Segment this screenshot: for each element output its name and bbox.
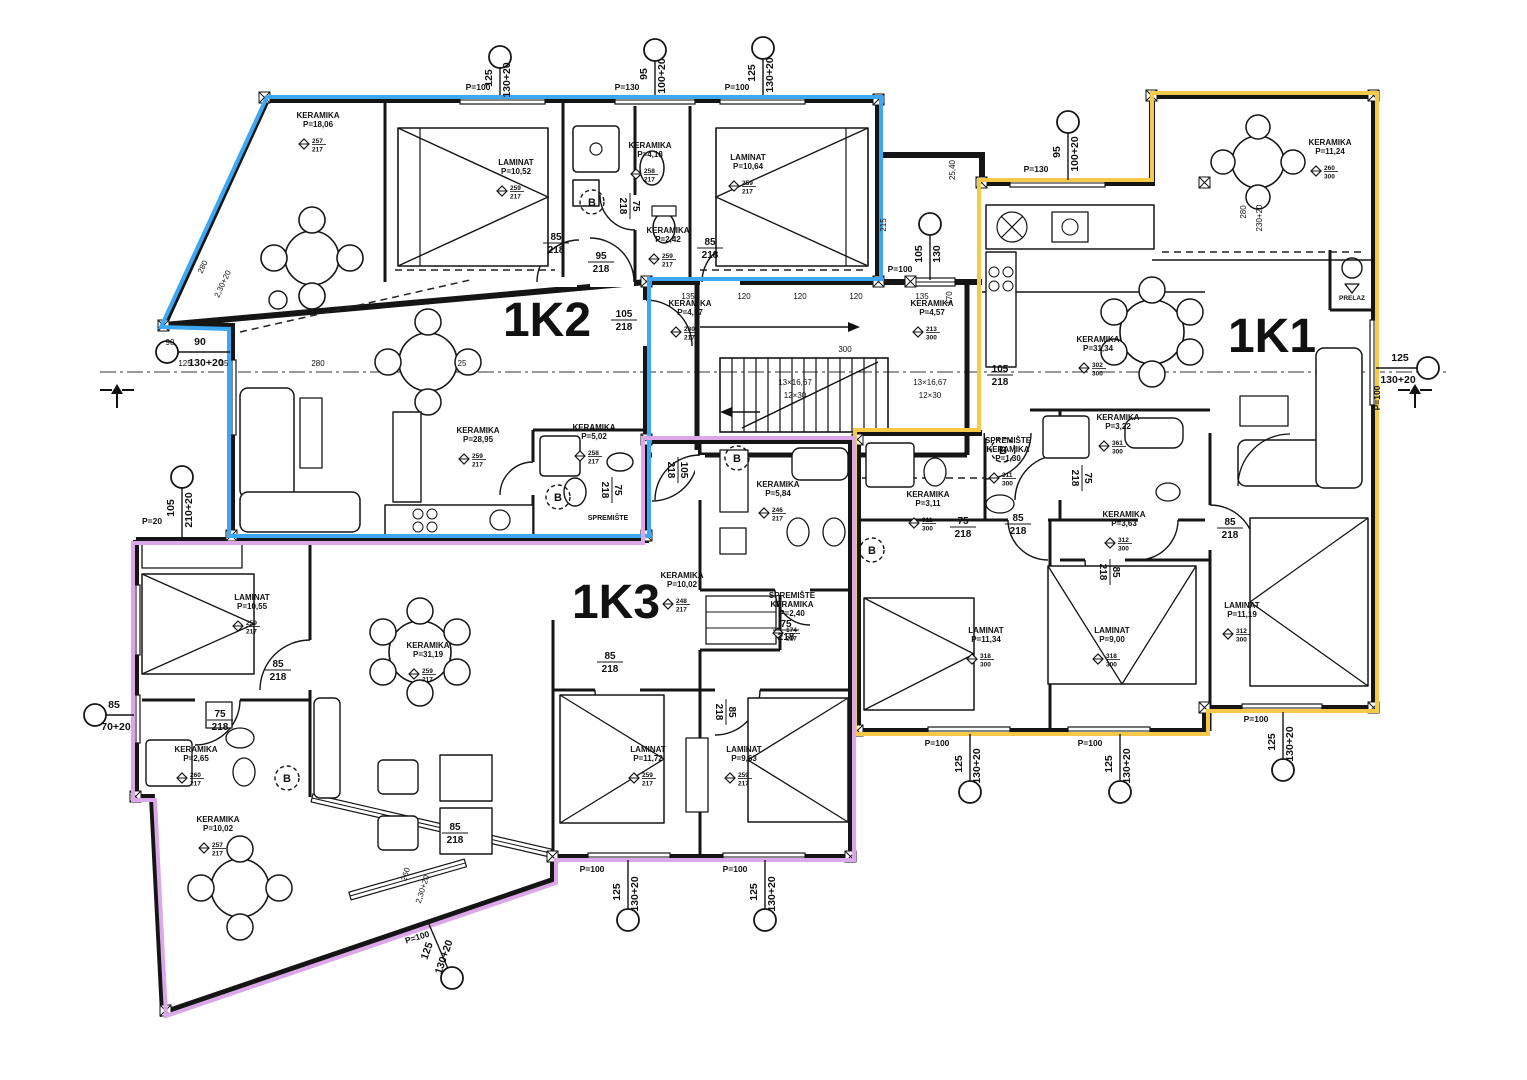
svg-text:P=11,19: P=11,19 [1227, 610, 1257, 619]
svg-text:KERAMIKA: KERAMIKA [456, 426, 499, 435]
svg-text:P=10,02: P=10,02 [203, 824, 234, 833]
svg-text:KERAMIKA: KERAMIKA [1096, 413, 1139, 422]
prelaz-icon [1342, 258, 1362, 293]
wall-p-label: P=100 [580, 864, 605, 874]
svg-text:300: 300 [1112, 449, 1123, 456]
wall-p-label: P=130 [615, 82, 640, 92]
svg-text:218: 218 [270, 672, 287, 683]
svg-text:75: 75 [630, 200, 641, 212]
wall-p-label: P=100 [888, 264, 913, 274]
bed-1k2-right [716, 128, 868, 266]
svg-text:217: 217 [422, 677, 433, 684]
dim-text: 280 [311, 359, 325, 368]
svg-text:KERAMIKA: KERAMIKA [986, 445, 1029, 454]
dim-text: 12×30 [919, 391, 942, 400]
svg-text:218: 218 [665, 462, 676, 479]
dim-text: 25 [458, 359, 467, 368]
svg-text:B: B [283, 773, 291, 785]
dim-text: 13×16,67 [913, 378, 947, 387]
svg-text:130+20: 130+20 [764, 57, 776, 92]
svg-text:P=2,40: P=2,40 [779, 609, 805, 618]
svg-text:217: 217 [312, 147, 323, 154]
section-marker-a-left [100, 384, 134, 408]
svg-text:312: 312 [1236, 628, 1247, 635]
svg-text:218: 218 [616, 322, 633, 333]
wall-p-label: P=100 [725, 82, 750, 92]
dim-text: 120 [737, 292, 751, 301]
svg-text:P=11,72: P=11,72 [633, 754, 663, 763]
svg-text:85: 85 [550, 232, 562, 243]
svg-text:105: 105 [616, 309, 633, 320]
svg-text:300: 300 [926, 335, 937, 342]
svg-text:218: 218 [713, 704, 724, 721]
svg-text:259: 259 [642, 772, 653, 779]
svg-text:218: 218 [548, 245, 565, 256]
dimension-marker: 125130+20 [746, 37, 776, 95]
svg-text:KERAMIKA: KERAMIKA [196, 815, 239, 824]
svg-text:KERAMIKA: KERAMIKA [1308, 138, 1351, 147]
apartment-label-1k2: 1K2 [503, 294, 591, 347]
dimension-marker: 105130 [913, 213, 943, 280]
svg-text:218: 218 [778, 632, 795, 643]
room-label: KERAMIKAP=11,24260300 [1308, 138, 1351, 181]
svg-text:260: 260 [1324, 165, 1335, 172]
svg-text:105: 105 [678, 462, 689, 479]
dimension-marker: 95100+20 [638, 39, 668, 95]
wall-p-label: P=100 [723, 864, 748, 874]
wall-p-label: P=100 [1372, 385, 1382, 410]
svg-text:100+20: 100+20 [656, 58, 668, 93]
dimension-marker: 125130+20 [1376, 352, 1439, 386]
svg-text:P=9,00: P=9,00 [1099, 635, 1125, 644]
dim-text: 120 [849, 292, 863, 301]
svg-text:85: 85 [449, 822, 461, 833]
svg-text:218: 218 [1097, 564, 1108, 581]
svg-text:130+20: 130+20 [501, 62, 513, 97]
svg-text:217: 217 [684, 335, 695, 342]
svg-text:75: 75 [957, 516, 969, 527]
svg-text:LAMINAT: LAMINAT [498, 158, 534, 167]
svg-text:217: 217 [676, 607, 687, 614]
dining-table-terrace-1k1 [1211, 115, 1305, 209]
room-label: KERAMIKAP=2,42259217 [646, 226, 689, 269]
svg-text:130+20: 130+20 [766, 876, 778, 911]
svg-text:218: 218 [212, 722, 229, 733]
svg-text:B: B [554, 492, 562, 504]
svg-text:KERAMIKA: KERAMIKA [628, 141, 671, 150]
svg-text:217: 217 [472, 462, 483, 469]
svg-text:70+20: 70+20 [101, 721, 131, 733]
svg-text:130+20: 130+20 [188, 357, 223, 369]
svg-text:300: 300 [980, 662, 991, 669]
misc-label: PRELAZ [1339, 295, 1365, 302]
svg-text:300: 300 [1106, 662, 1117, 669]
dim-text: 2,30+20 [212, 268, 233, 299]
dimension-marker: 8570+20 [84, 699, 134, 733]
svg-text:KERAMIKA: KERAMIKA [660, 571, 703, 580]
dim-text: 25,40 [948, 159, 957, 180]
svg-text:85: 85 [604, 651, 616, 662]
svg-text:300: 300 [1324, 174, 1335, 181]
wall-p-label: P=100 [925, 738, 950, 748]
svg-text:217: 217 [772, 516, 783, 523]
svg-text:217: 217 [742, 189, 753, 196]
dim-text: 280 [1239, 205, 1248, 219]
svg-text:217: 217 [588, 459, 599, 466]
door-size-label: 75218 [599, 477, 623, 503]
floor-plan-svg: 1K11K21K3KERAMIKAP=18,06257217LAMINATP=1… [0, 0, 1527, 1080]
svg-text:217: 217 [246, 629, 257, 636]
svg-text:217: 217 [212, 851, 223, 858]
svg-text:125: 125 [1391, 352, 1409, 364]
door-size-label: 85218 [713, 699, 737, 725]
bed-1k1-middle [1048, 566, 1196, 684]
wall-p-label: P=130 [1024, 164, 1049, 174]
svg-text:125: 125 [1266, 733, 1278, 751]
bed-1k2-left [398, 128, 548, 266]
dimension-marker: 125130+20 [748, 860, 778, 931]
svg-text:300: 300 [1002, 481, 1013, 488]
dim-text: 120 [793, 292, 807, 301]
svg-text:B: B [588, 197, 596, 209]
svg-text:95: 95 [638, 68, 650, 80]
svg-text:P=10,64: P=10,64 [733, 162, 764, 171]
dim-text: 170 [945, 291, 954, 305]
svg-text:KERAMIKA: KERAMIKA [756, 480, 799, 489]
svg-text:125: 125 [746, 64, 758, 82]
svg-text:130+20: 130+20 [1284, 726, 1296, 761]
svg-text:P=11,24: P=11,24 [1315, 147, 1345, 156]
boiler-mark: B [275, 766, 299, 790]
svg-text:130+20: 130+20 [971, 748, 983, 783]
svg-text:218: 218 [617, 198, 628, 215]
svg-text:P=9,63: P=9,63 [731, 754, 757, 763]
dimension-marker: 125130+20 [1103, 734, 1133, 803]
dim-text: 12×30 [784, 391, 807, 400]
svg-text:B: B [999, 445, 1007, 457]
door-size-label: 75218 [1069, 465, 1093, 491]
bed-1k1-left [864, 598, 974, 710]
svg-text:217: 217 [510, 194, 521, 201]
room-label: KERAMIKAP=4,57230217 [668, 299, 711, 342]
svg-text:230: 230 [684, 326, 695, 333]
svg-text:P=4,57: P=4,57 [677, 308, 703, 317]
svg-text:258: 258 [644, 168, 655, 175]
svg-text:125: 125 [748, 883, 760, 901]
apartment-label-1k1: 1K1 [1228, 310, 1316, 363]
svg-text:KERAMIKA: KERAMIKA [1076, 335, 1119, 344]
door-size-label: 105218 [611, 309, 637, 333]
boiler-mark: B [860, 538, 884, 562]
section-marker-a-right [1398, 384, 1432, 408]
svg-text:300: 300 [1236, 637, 1247, 644]
svg-text:P=2,42: P=2,42 [655, 235, 681, 244]
svg-text:75: 75 [780, 619, 792, 630]
svg-text:LAMINAT: LAMINAT [630, 745, 666, 754]
dim-text: 300 [838, 345, 852, 354]
dimension-marker: 125130+20 [1266, 712, 1296, 781]
bathroom-1k3-hall [706, 448, 848, 644]
svg-text:300: 300 [1092, 371, 1103, 378]
svg-text:KERAMIKA: KERAMIKA [296, 111, 339, 120]
svg-text:75: 75 [1082, 472, 1093, 484]
svg-text:85: 85 [1110, 566, 1121, 578]
svg-text:LAMINAT: LAMINAT [234, 593, 270, 602]
door-size-label: 85218 [597, 651, 623, 675]
svg-text:P=11,34: P=11,34 [971, 635, 1001, 644]
wardrobe-1k3 [142, 544, 242, 568]
svg-text:P=3,22: P=3,22 [1105, 422, 1131, 431]
svg-text:P=28,95: P=28,95 [463, 435, 494, 444]
svg-text:259: 259 [742, 180, 753, 187]
svg-text:312: 312 [1118, 537, 1129, 544]
apartment-label-1k3: 1K3 [572, 576, 660, 629]
svg-text:300: 300 [1118, 546, 1129, 553]
bed-1k3-bottom-right [748, 698, 848, 822]
dim-text: 35 [220, 359, 229, 368]
svg-text:P=31,34: P=31,34 [1083, 344, 1114, 353]
svg-text:257: 257 [312, 138, 323, 145]
svg-text:85: 85 [1012, 513, 1024, 524]
svg-text:218: 218 [593, 264, 610, 275]
dim-text: 230+20 [1255, 204, 1264, 231]
wall-p-label: P=20 [142, 516, 162, 526]
svg-text:259: 259 [662, 253, 673, 260]
svg-text:218: 218 [599, 482, 610, 499]
svg-text:85: 85 [1224, 517, 1236, 528]
room-label: KERAMIKAP=10,02248217 [660, 571, 703, 614]
svg-text:130+20: 130+20 [629, 876, 641, 911]
svg-text:361: 361 [1112, 440, 1123, 447]
svg-text:130: 130 [931, 245, 943, 263]
svg-text:259: 259 [510, 185, 521, 192]
svg-text:KERAMIKA: KERAMIKA [1102, 510, 1145, 519]
svg-text:LAMINAT: LAMINAT [968, 626, 1004, 635]
svg-text:P=5,84: P=5,84 [765, 489, 791, 498]
svg-text:KERAMIKA: KERAMIKA [406, 641, 449, 650]
svg-text:105: 105 [913, 245, 925, 263]
svg-text:259: 259 [472, 453, 483, 460]
bed-1k1-right [1250, 518, 1368, 686]
svg-text:125: 125 [611, 883, 623, 901]
svg-text:LAMINAT: LAMINAT [1224, 601, 1260, 610]
door-size-label: 95218 [588, 251, 614, 275]
svg-text:LAMINAT: LAMINAT [730, 153, 766, 162]
svg-text:P=3,11: P=3,11 [915, 499, 941, 508]
svg-text:258: 258 [588, 450, 599, 457]
svg-text:SPREMIŠTE: SPREMIŠTE [985, 436, 1032, 445]
svg-text:246: 246 [772, 507, 783, 514]
svg-text:218: 218 [447, 835, 464, 846]
svg-text:218: 218 [602, 664, 619, 675]
misc-label: SPREMIŠTE [588, 513, 629, 522]
svg-text:85: 85 [108, 699, 120, 711]
svg-text:210+20: 210+20 [183, 492, 195, 527]
svg-text:P=4,57: P=4,57 [919, 308, 945, 317]
dim-text: 90 [166, 338, 175, 347]
dim-text: 135 [681, 292, 695, 301]
svg-text:P=10,02: P=10,02 [667, 580, 698, 589]
sofa-1k1 [1238, 348, 1362, 488]
dim-text: 135 [915, 292, 929, 301]
svg-text:311: 311 [1002, 472, 1013, 479]
room-label: KERAMIKAP=3,63312300 [1102, 510, 1145, 553]
dim-text: 215 [879, 218, 888, 232]
svg-text:218: 218 [992, 377, 1009, 388]
svg-text:P=18,06: P=18,06 [303, 120, 334, 129]
dimension-marker: 125130+20 [611, 860, 641, 931]
room-label: KERAMIKAP=5,84246217 [756, 480, 799, 523]
furniture [142, 115, 1368, 940]
door-size-label: 85218 [1217, 517, 1243, 541]
svg-text:75: 75 [214, 709, 226, 720]
wardrobe-between-beds [686, 738, 708, 812]
dining-table-terrace-1k2 [261, 207, 363, 309]
svg-text:130+20: 130+20 [1121, 748, 1133, 783]
dim-text: 125 [178, 359, 192, 368]
room-label: KERAMIKAP=18,06257217 [296, 111, 339, 154]
svg-text:259: 259 [738, 772, 749, 779]
svg-text:217: 217 [662, 262, 673, 269]
svg-text:260: 260 [190, 772, 201, 779]
sofa-group-1k3 [314, 698, 492, 854]
wall-p-label: P=100 [1078, 738, 1103, 748]
dimension-marker: 105210+20 [165, 466, 195, 538]
svg-text:318: 318 [980, 653, 991, 660]
svg-text:P=10,52: P=10,52 [501, 167, 532, 176]
room-label: KERAMIKAP=3,11311300 [906, 490, 949, 533]
svg-text:P=4,18: P=4,18 [637, 150, 663, 159]
svg-text:130+20: 130+20 [1380, 374, 1415, 386]
svg-text:85: 85 [272, 659, 284, 670]
svg-text:KERAMIKA: KERAMIKA [906, 490, 949, 499]
svg-text:LAMINAT: LAMINAT [726, 745, 762, 754]
svg-text:95: 95 [595, 251, 607, 262]
svg-text:95: 95 [1051, 146, 1063, 158]
svg-text:85: 85 [704, 237, 716, 248]
svg-text:218: 218 [1069, 470, 1080, 487]
dimension-marker: 125130+20 [953, 734, 983, 803]
svg-text:311: 311 [922, 517, 933, 524]
svg-text:KERAMIKA: KERAMIKA [770, 600, 813, 609]
svg-text:105: 105 [992, 364, 1009, 375]
wall-p-label: P=100 [1244, 714, 1269, 724]
svg-text:P=5,02: P=5,02 [581, 432, 607, 441]
room-label: SPREMIŠTEKERAMIKAP=1,30311300 [985, 436, 1032, 488]
svg-text:217: 217 [190, 781, 201, 788]
floor-plan-page: { "plan": { "colors": { "k1_yellow": "#F… [0, 0, 1527, 1080]
svg-text:257: 257 [212, 842, 223, 849]
svg-text:218: 218 [955, 529, 972, 540]
svg-text:125: 125 [1103, 755, 1115, 773]
svg-text:B: B [733, 453, 741, 465]
dimension-marker: 95100+20 [1051, 111, 1081, 180]
svg-text:125: 125 [419, 941, 436, 962]
svg-text:248: 248 [676, 598, 687, 605]
svg-text:300: 300 [922, 526, 933, 533]
svg-text:259: 259 [246, 620, 257, 627]
sofa-1k2 [240, 388, 360, 532]
svg-text:125: 125 [953, 755, 965, 773]
svg-text:217: 217 [738, 781, 749, 788]
svg-text:B: B [868, 545, 876, 557]
stairs-icon [700, 322, 888, 432]
svg-text:218: 218 [1222, 530, 1239, 541]
svg-text:75: 75 [612, 484, 623, 496]
svg-text:218: 218 [702, 250, 719, 261]
svg-text:85: 85 [726, 706, 737, 718]
svg-text:P=31,19: P=31,19 [413, 650, 444, 659]
svg-text:100+20: 100+20 [1069, 136, 1081, 171]
svg-text:P=2,65: P=2,65 [183, 754, 209, 763]
svg-text:217: 217 [644, 177, 655, 184]
svg-text:217: 217 [642, 781, 653, 788]
svg-text:302: 302 [1092, 362, 1103, 369]
svg-text:P=3,63: P=3,63 [1111, 519, 1137, 528]
dining-table-1k1 [1101, 277, 1203, 387]
svg-text:SPREMIŠTE: SPREMIŠTE [769, 591, 816, 600]
svg-text:105: 105 [165, 499, 177, 517]
svg-text:90: 90 [194, 336, 206, 348]
svg-text:259: 259 [422, 668, 433, 675]
dim-text: 280 [196, 258, 210, 274]
wall-p-label: P=100 [466, 82, 491, 92]
svg-text:318: 318 [1106, 653, 1117, 660]
svg-text:218: 218 [1010, 526, 1027, 537]
svg-text:P=10,55: P=10,55 [237, 602, 268, 611]
room-label: KERAMIKAP=28,95259217 [456, 426, 499, 469]
dim-text: 13×16,67 [778, 378, 812, 387]
svg-text:KERAMIKA: KERAMIKA [572, 423, 615, 432]
svg-text:KERAMIKA: KERAMIKA [646, 226, 689, 235]
svg-text:LAMINAT: LAMINAT [1094, 626, 1130, 635]
svg-text:KERAMIKA: KERAMIKA [174, 745, 217, 754]
svg-text:213: 213 [926, 326, 937, 333]
